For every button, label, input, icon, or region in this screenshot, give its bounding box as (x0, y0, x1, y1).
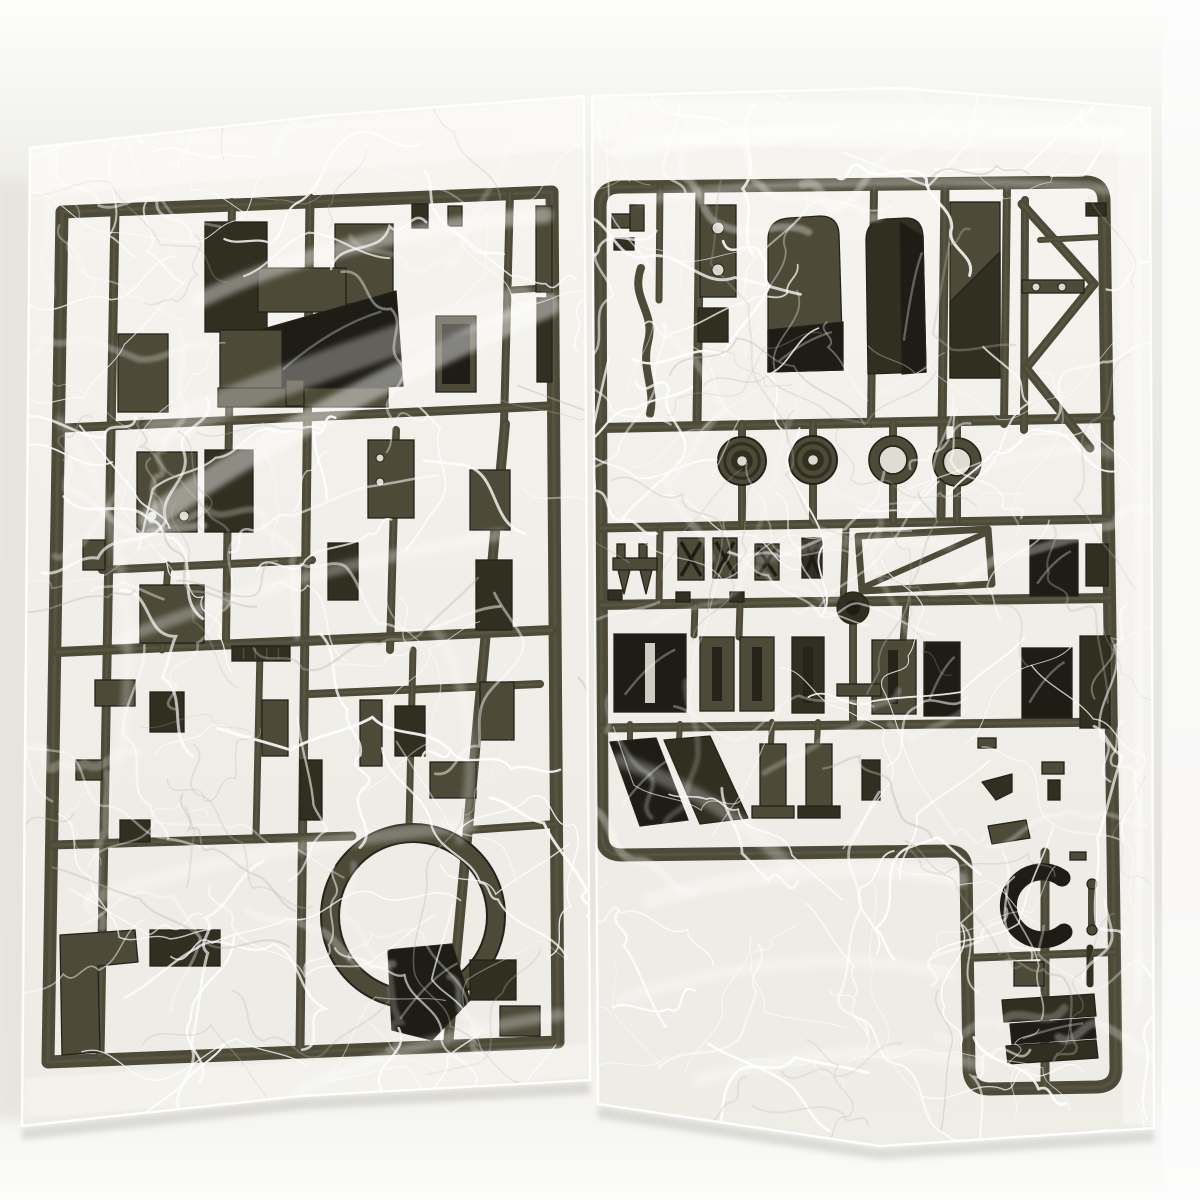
cross-bar (837, 684, 881, 696)
fitting (360, 700, 382, 766)
stub (1042, 762, 1064, 774)
dark-plate (1022, 648, 1072, 718)
table-shade-right (1162, 0, 1200, 1200)
runner-highlight (659, 528, 660, 605)
fitting (470, 470, 510, 530)
stub (1048, 780, 1060, 800)
runner-highlight (739, 605, 740, 637)
x-braced-plate (713, 538, 737, 578)
t-foot-part (806, 744, 832, 808)
slotted-panel (700, 637, 734, 711)
runner-highlight (679, 724, 680, 740)
stub (1086, 203, 1106, 216)
stub (83, 540, 105, 570)
stub (1070, 852, 1086, 860)
slotted-panel (740, 637, 774, 711)
bracket (698, 308, 728, 342)
road-wheel (718, 437, 766, 485)
t-foot-base (798, 806, 840, 818)
slotted-panel (614, 634, 686, 712)
plate (1086, 544, 1108, 586)
photo-of-model-kit-sprues: Top-down photo of two olive-drab plastic… (0, 0, 1200, 1200)
fitting (470, 960, 516, 1000)
foot (676, 592, 690, 602)
pedestal (613, 558, 657, 570)
photo-canvas (0, 0, 1200, 1200)
runner-highlight (1024, 200, 1025, 430)
pedestal-prong (639, 544, 647, 558)
spindle-end (1087, 925, 1097, 935)
t-foot-base (752, 806, 794, 818)
wheel-ring (869, 436, 917, 484)
stub (630, 205, 644, 231)
t-foot-part (760, 744, 786, 808)
panel (118, 334, 168, 412)
foot (608, 590, 622, 600)
fender-shadow (900, 222, 926, 374)
bracket-with-holes (700, 205, 736, 297)
runner-highlight (659, 187, 660, 300)
bracket-with-holes (1022, 280, 1084, 293)
road-wheel (789, 436, 837, 484)
fitting (480, 682, 514, 740)
